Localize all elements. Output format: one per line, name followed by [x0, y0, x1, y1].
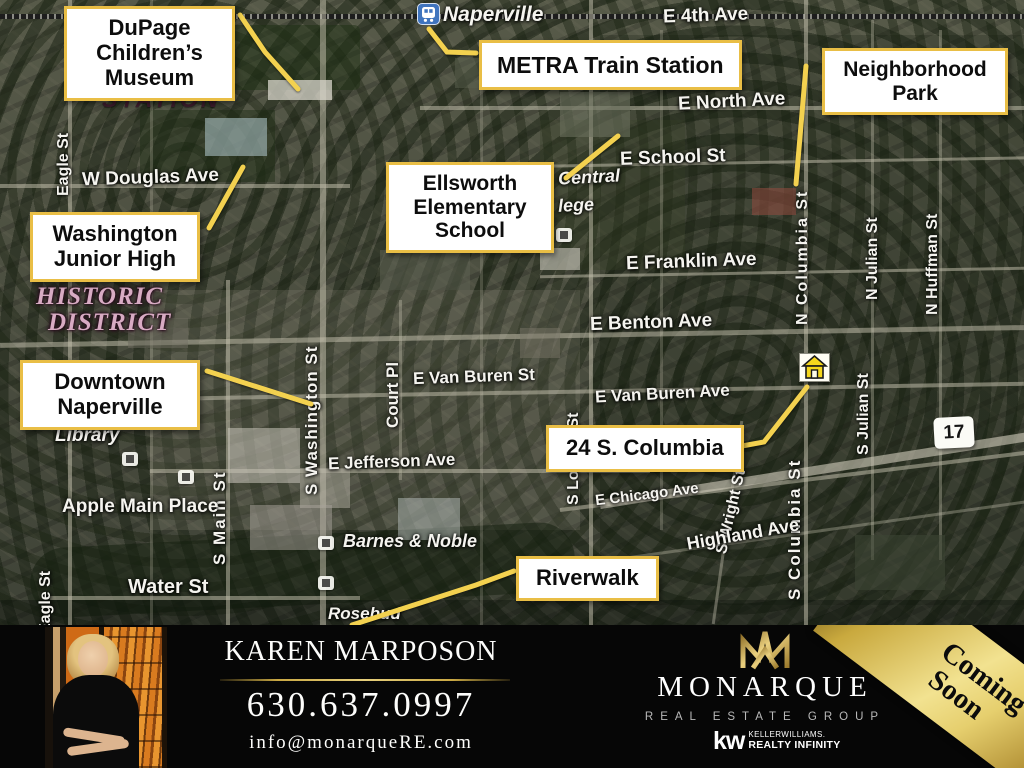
historic-line2: DISTRICT: [48, 310, 171, 336]
agent-contact-block: KAREN MARPOSON 630.637.0997 info@monarqu…: [200, 625, 522, 768]
satellite-map: E 4th Ave E North Ave E School St W Doug…: [0, 0, 1024, 625]
street-label-courtpl: Court Pl: [384, 362, 401, 428]
kw-line2: REALTY INFINITY: [748, 739, 840, 751]
poi-label-barnes-noble: Barnes & Noble: [343, 532, 477, 550]
street-label-smain: S Main St: [211, 470, 228, 565]
poi-label-rosebud: Rosebud: [328, 605, 401, 622]
callout-text: School: [399, 219, 541, 243]
callout-text: Museum: [77, 66, 222, 91]
street-label-douglas: W Douglas Ave: [82, 166, 219, 190]
callout-text: Downtown: [33, 370, 187, 395]
street-label-jefferson: E Jefferson Ave: [328, 451, 456, 472]
callout-text: Neighborhood: [835, 58, 995, 82]
poi-label-central: Central: [558, 166, 621, 187]
street-label-benton: E Benton Ave: [590, 311, 713, 334]
street-label-njulian: N Julian St: [865, 217, 881, 300]
shopping-monitor-icon: [178, 470, 194, 484]
callout-dupage-childrens-museum: DuPage Children’s Museum: [64, 6, 235, 101]
brokerage-name: MONARQUE: [635, 671, 895, 704]
callout-text: 24 S. Columbia: [566, 436, 724, 461]
agent-phone: 630.637.0997: [200, 685, 522, 725]
callout-neighborhood-park: Neighborhood Park: [822, 48, 1008, 115]
kw-mark: kw: [713, 731, 744, 751]
callout-downtown-naperville: Downtown Naperville: [20, 360, 200, 430]
agent-name: KAREN MARPOSON: [200, 636, 522, 668]
street-label-nhuffman: N Huffman St: [925, 214, 941, 315]
street-label-swashington: S Washington St: [303, 346, 320, 495]
agent-banner: KAREN MARPOSON 630.637.0997 info@monarqu…: [0, 625, 1024, 768]
callout-24-s-columbia: 24 S. Columbia: [546, 425, 744, 472]
street-label-eagle-south: Eagle St: [38, 571, 54, 625]
callout-text: Junior High: [43, 247, 187, 272]
agent-email: info@monarqueRE.com: [200, 732, 522, 754]
kw-line1: KELLERWILLIAMS.: [748, 730, 840, 739]
agent-photo: [45, 627, 167, 768]
street-label-ncolumbia: N Columbia St: [795, 190, 811, 325]
street-label-school: E School St: [620, 146, 726, 169]
callout-text: Ellsworth: [399, 172, 541, 196]
callout-text: DuPage: [77, 16, 222, 41]
callout-text: Park: [835, 82, 995, 106]
route-17-shield: 17: [933, 416, 975, 449]
keller-williams-logo: kw KELLERWILLIAMS. REALTY INFINITY: [713, 730, 841, 751]
metra-station-icon: [417, 3, 440, 25]
callout-text: Elementary: [399, 196, 541, 220]
street-label-vanburen-st: E Van Buren St: [413, 366, 535, 387]
street-label-franklin: E Franklin Ave: [626, 250, 757, 274]
callout-metra-train-station: METRA Train Station: [479, 40, 742, 90]
street-label-water: Water St: [128, 577, 208, 597]
library-book-icon: [122, 452, 138, 466]
callout-washington-junior-high: Washington Junior High: [30, 212, 200, 282]
bookstore-icon: [318, 536, 334, 550]
callout-riverwalk: Riverwalk: [516, 556, 659, 601]
monarque-crown-icon: [735, 628, 795, 670]
callout-text: METRA Train Station: [497, 52, 724, 78]
subject-property-house-icon: [799, 353, 830, 382]
poi-label-apple-main-place: Apple Main Place: [62, 497, 218, 516]
college-grad-cap-icon: [556, 228, 572, 242]
callout-ellsworth-elementary: Ellsworth Elementary School: [386, 162, 554, 253]
callout-text: Riverwalk: [536, 566, 639, 591]
poi-label-college: lege: [558, 195, 595, 215]
callout-text: Naperville: [33, 395, 187, 420]
gold-divider: [220, 679, 510, 681]
callout-text: Washington: [43, 222, 187, 247]
street-label-e4th: E 4th Ave: [663, 5, 749, 27]
street-label-sjulian: S Julian St: [856, 373, 872, 455]
kw-text: KELLERWILLIAMS. REALTY INFINITY: [748, 730, 840, 751]
station-label-naperville: Naperville: [443, 4, 543, 25]
historic-district-label: HISTORIC DISTRICT: [36, 284, 171, 337]
brokerage-tagline: REAL ESTATE GROUP: [635, 711, 895, 723]
historic-line1: HISTORIC: [36, 284, 171, 310]
callout-text: Children’s: [77, 41, 222, 66]
callout-line-metra: [429, 29, 476, 53]
flyer: E 4th Ave E North Ave E School St W Doug…: [0, 0, 1024, 768]
restaurant-icon: [318, 576, 334, 590]
street-label-eagle: Eagle St: [56, 133, 72, 196]
